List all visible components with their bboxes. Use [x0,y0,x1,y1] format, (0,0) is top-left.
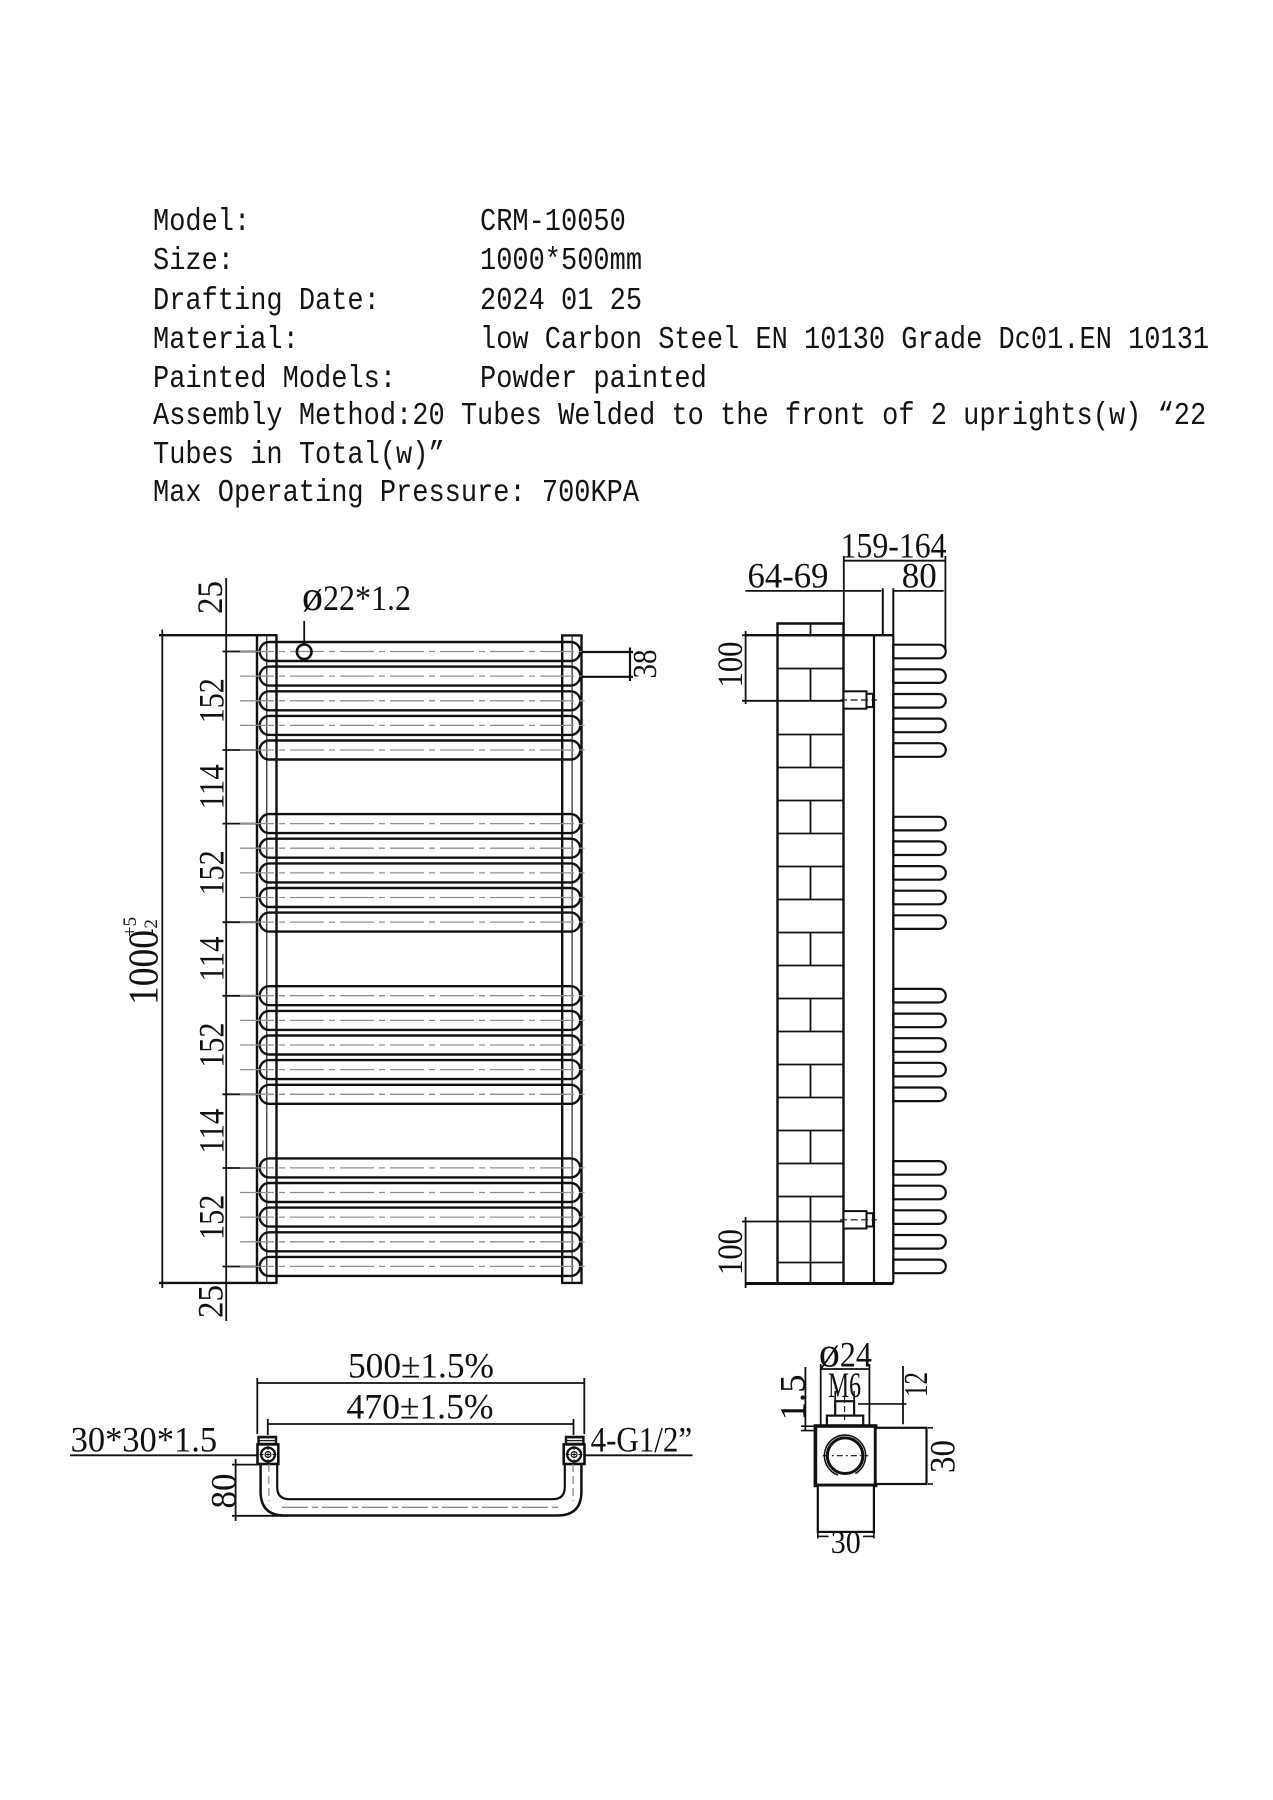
svg-text:114: 114 [191,764,231,809]
svg-text:152: 152 [191,678,231,723]
svg-text:114: 114 [191,1109,231,1154]
svg-text:ø22*1.2: ø22*1.2 [302,574,411,620]
svg-text:+5: +5 [120,917,141,937]
svg-text:38: 38 [627,650,664,679]
svg-text:152: 152 [191,1195,231,1240]
svg-text:-2: -2 [141,919,162,935]
svg-text:80: 80 [203,1474,243,1509]
svg-text:1000: 1000 [122,930,168,1005]
svg-text:25: 25 [190,1285,230,1318]
svg-text:114: 114 [191,937,231,982]
svg-text:30: 30 [922,1440,962,1473]
svg-text:500±1.5%: 500±1.5% [348,1346,494,1386]
svg-text:100: 100 [710,1229,750,1275]
svg-text:30: 30 [831,1525,861,1561]
svg-text:470±1.5%: 470±1.5% [347,1387,494,1427]
svg-text:4-G1/2”: 4-G1/2” [591,1420,693,1460]
svg-text:80: 80 [902,555,937,595]
svg-text:100: 100 [710,642,750,688]
svg-text:30*30*1.5: 30*30*1.5 [71,1420,218,1460]
svg-text:25: 25 [190,581,230,614]
svg-text:64-69: 64-69 [748,555,829,595]
svg-text:152: 152 [191,1023,231,1068]
svg-text:1.5: 1.5 [772,1375,812,1421]
svg-text:12: 12 [898,1372,935,1397]
svg-text:152: 152 [191,850,231,895]
